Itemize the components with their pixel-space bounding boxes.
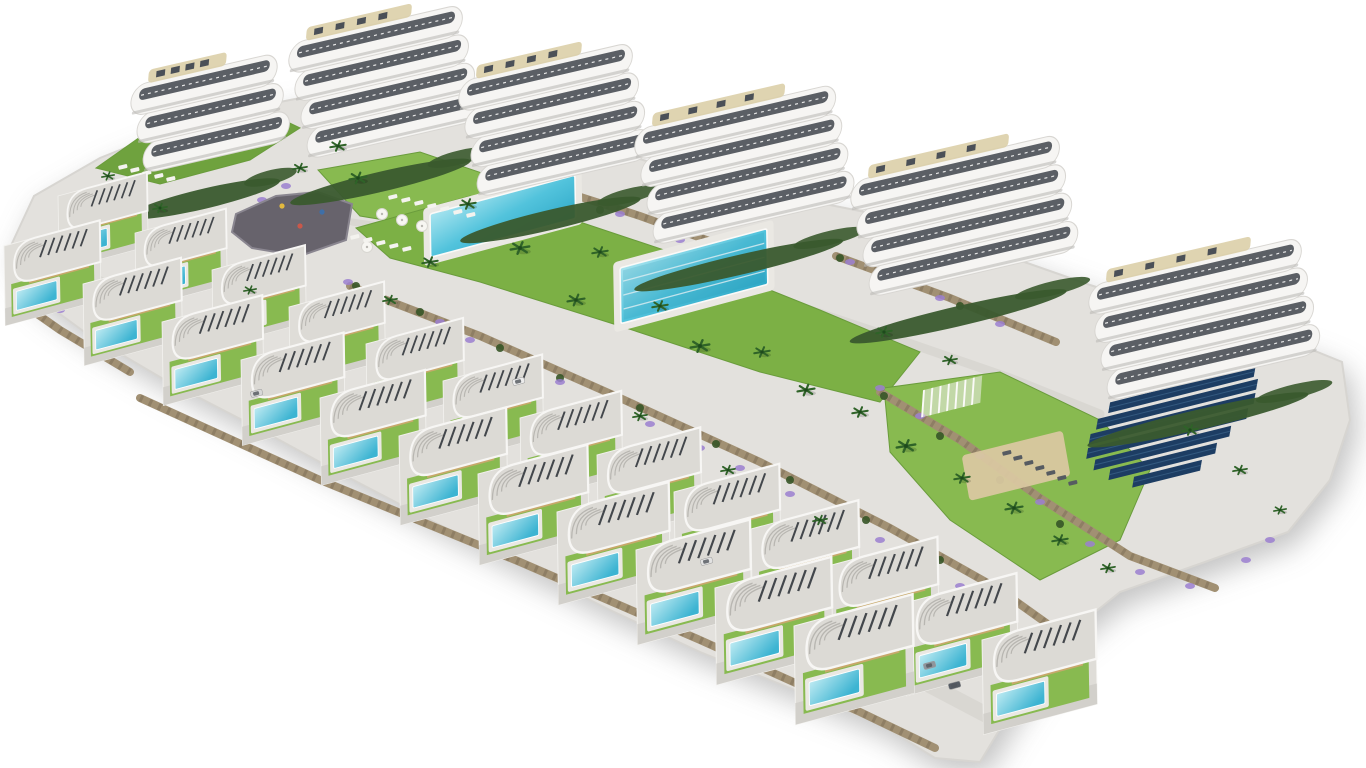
umbrella-pole (421, 225, 423, 227)
flower-patch (555, 379, 565, 385)
palm-crown (1239, 469, 1242, 472)
palm-crown (336, 144, 339, 147)
palm-crown (1012, 506, 1016, 510)
palm-crown (960, 476, 963, 479)
flower-patch (465, 337, 475, 343)
shrub (1056, 520, 1064, 528)
shrub (880, 392, 888, 400)
palm-crown (1107, 567, 1110, 570)
flower-patch (281, 183, 291, 189)
flower-patch (875, 385, 885, 391)
shrub (836, 254, 844, 262)
palm-crown (518, 246, 522, 250)
flower-patch (1085, 541, 1095, 547)
flower-patch (615, 211, 625, 217)
palm-crown (107, 175, 110, 178)
palm-crown (698, 344, 702, 348)
flower-patch (785, 491, 795, 497)
shrub (936, 432, 944, 440)
palm-crown (598, 250, 601, 253)
aerial-render-stage (0, 0, 1366, 768)
shrub (496, 344, 504, 352)
palm-crown (356, 176, 360, 180)
shrub (712, 440, 720, 448)
palm-crown (466, 202, 469, 205)
playground-toy (297, 223, 302, 228)
palm-crown (639, 415, 642, 418)
palm-crown (249, 289, 252, 292)
palm-crown (428, 260, 431, 263)
palm-crown (949, 359, 952, 362)
umbrella-pole (381, 213, 383, 215)
playground-toy (319, 209, 324, 214)
flower-patch (343, 279, 353, 285)
palm-crown (1058, 538, 1061, 541)
flower-patch (1265, 537, 1275, 543)
palm-crown (159, 207, 162, 210)
palm-crown (904, 444, 908, 448)
flower-patch (875, 537, 885, 543)
umbrella-pole (401, 219, 403, 221)
shrub (416, 308, 424, 316)
flower-patch (645, 421, 655, 427)
palm-crown (858, 410, 861, 413)
shrub (636, 404, 644, 412)
flower-patch (845, 259, 855, 265)
palm-crown (819, 519, 822, 522)
shrub (786, 476, 794, 484)
flower-patch (1035, 499, 1045, 505)
flower-patch (995, 321, 1005, 327)
flower-patch (735, 465, 745, 471)
palm-crown (299, 167, 302, 170)
flower-patch (1185, 583, 1195, 589)
palm-crown (574, 298, 578, 302)
palm-crown (727, 469, 730, 472)
palm-crown (658, 304, 661, 307)
palm-crown (1188, 428, 1191, 431)
flower-patch (1241, 557, 1251, 563)
umbrella-pole (366, 246, 368, 248)
palm-crown (760, 350, 763, 353)
palm-crown (804, 388, 808, 392)
aerial-render-image (0, 0, 1366, 768)
palm-crown (389, 299, 392, 302)
palm-crown (882, 330, 885, 333)
playground-toy (279, 203, 284, 208)
flower-patch (1135, 569, 1145, 575)
flower-patch (935, 295, 945, 301)
shrub (862, 516, 870, 524)
palm-crown (1279, 509, 1282, 512)
